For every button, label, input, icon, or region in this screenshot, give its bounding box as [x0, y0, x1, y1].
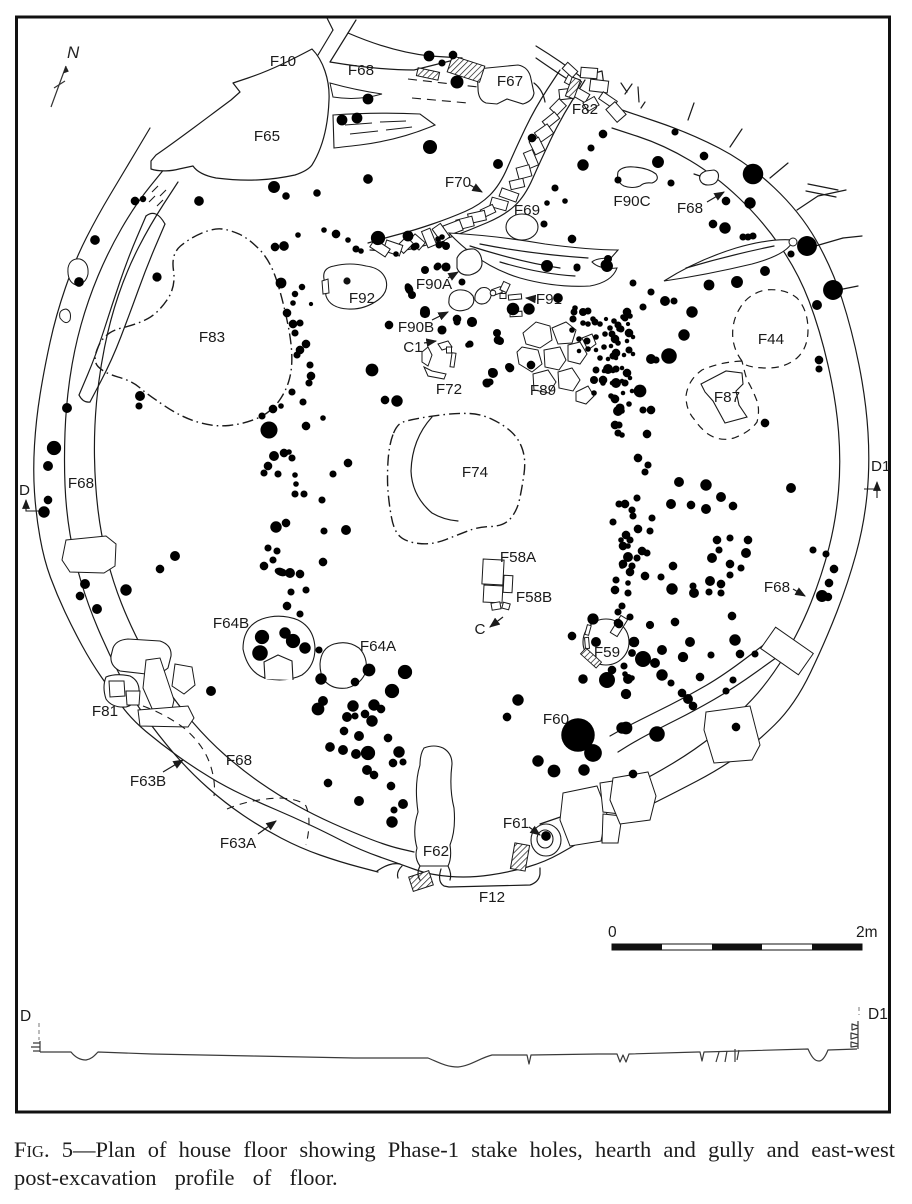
svg-text:F64B: F64B	[213, 615, 249, 632]
svg-text:F68: F68	[348, 62, 374, 79]
svg-text:F74: F74	[462, 464, 488, 481]
svg-text:F61: F61	[503, 815, 529, 832]
svg-text:2m: 2m	[856, 924, 878, 941]
svg-text:F68: F68	[226, 752, 252, 769]
svg-text:F68: F68	[677, 200, 703, 217]
svg-text:D1: D1	[871, 458, 890, 475]
svg-text:F83: F83	[199, 329, 225, 346]
svg-text:F68: F68	[68, 475, 94, 492]
svg-text:F63A: F63A	[220, 835, 257, 852]
svg-text:N: N	[67, 43, 80, 62]
svg-text:F90B: F90B	[398, 319, 434, 336]
svg-text:F58B: F58B	[516, 589, 552, 606]
svg-text:F67: F67	[497, 73, 523, 90]
svg-text:F92: F92	[349, 290, 375, 307]
svg-text:0: 0	[608, 924, 617, 941]
svg-text:F63B: F63B	[130, 773, 166, 790]
svg-text:F70: F70	[445, 174, 471, 191]
svg-text:C1: C1	[403, 339, 422, 356]
svg-text:F64A: F64A	[360, 638, 397, 655]
svg-text:F58A: F58A	[500, 549, 537, 566]
svg-text:D: D	[20, 1008, 31, 1025]
svg-text:F72: F72	[436, 381, 462, 398]
svg-text:F44: F44	[758, 331, 784, 348]
svg-text:F68: F68	[764, 579, 790, 596]
svg-text:C: C	[475, 621, 486, 638]
svg-text:F12: F12	[479, 889, 505, 906]
svg-text:F87: F87	[714, 389, 740, 406]
svg-text:F82: F82	[572, 101, 598, 118]
svg-text:F90C: F90C	[613, 193, 650, 210]
svg-text:F81: F81	[92, 703, 118, 720]
svg-text:F62: F62	[423, 843, 449, 860]
svg-text:F89: F89	[530, 382, 556, 399]
svg-text:D1: D1	[868, 1006, 888, 1023]
svg-text:F90A: F90A	[416, 276, 453, 293]
svg-text:F10: F10	[270, 53, 296, 70]
svg-text:F65: F65	[254, 128, 280, 145]
svg-text:D: D	[19, 482, 30, 499]
svg-text:F69: F69	[514, 202, 540, 219]
